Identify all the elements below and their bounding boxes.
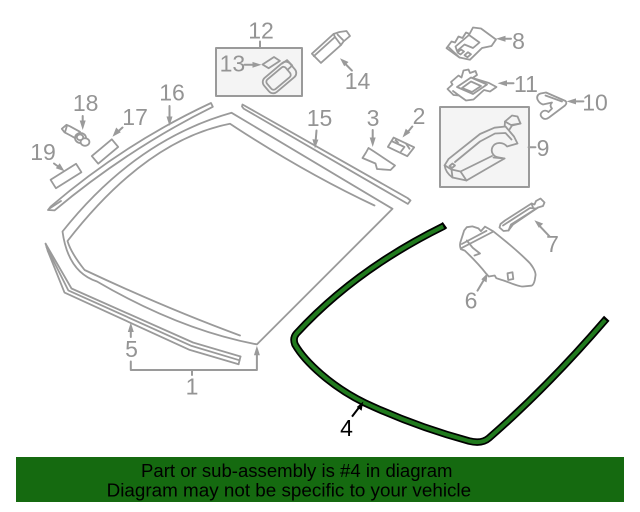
svg-text:11: 11 <box>514 71 538 97</box>
svg-text:12: 12 <box>248 18 274 44</box>
svg-text:10: 10 <box>582 90 608 116</box>
svg-text:3: 3 <box>367 105 380 131</box>
svg-text:19: 19 <box>30 139 56 165</box>
svg-text:9: 9 <box>537 135 550 161</box>
svg-text:15: 15 <box>307 105 333 131</box>
svg-text:17: 17 <box>122 104 148 130</box>
svg-text:14: 14 <box>345 68 371 94</box>
svg-text:4: 4 <box>340 415 353 441</box>
svg-text:13: 13 <box>220 51 246 77</box>
svg-text:Diagram may not be specific to: Diagram may not be specific to your vehi… <box>107 481 471 501</box>
svg-text:1: 1 <box>186 374 199 400</box>
svg-text:6: 6 <box>465 288 478 314</box>
svg-text:18: 18 <box>73 90 99 116</box>
svg-text:5: 5 <box>125 336 138 362</box>
svg-text:Part or sub-assembly is #4 in: Part or sub-assembly is #4 in diagram <box>141 461 453 481</box>
svg-text:16: 16 <box>159 79 185 105</box>
svg-text:2: 2 <box>413 103 426 129</box>
svg-text:8: 8 <box>512 28 525 54</box>
